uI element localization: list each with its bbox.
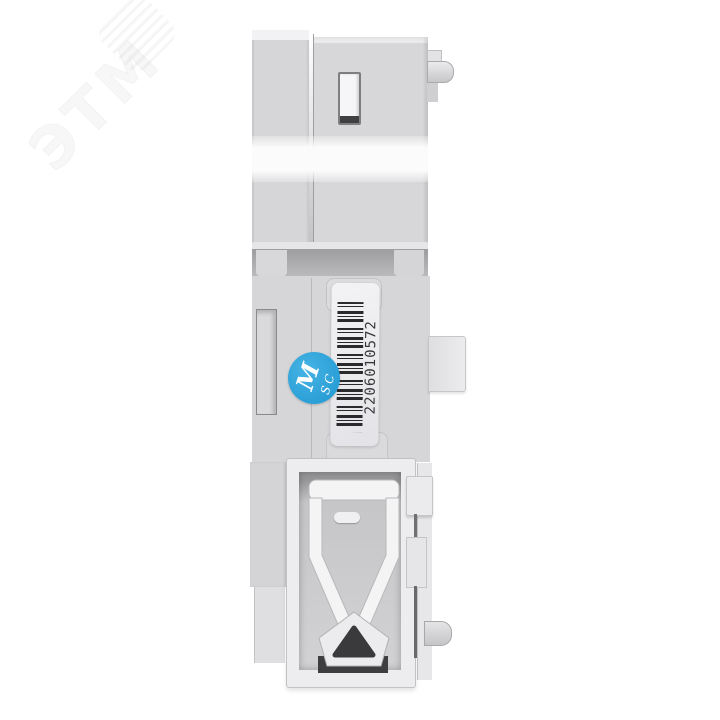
indicator-slot-hole [340,116,359,123]
bottom-mount-pin [424,621,452,646]
step-tab-right [394,250,424,276]
rail-gap-upper [414,514,417,537]
qc-sticker: M SC [288,352,340,404]
indicator-slot-window [338,72,361,125]
barcode-number: 2206010572 [362,300,378,434]
step-tab-left [256,250,287,276]
rail-clip-block-mid [406,537,427,588]
bottom-left-foot [254,587,285,663]
top-pin-base [427,82,438,102]
top-mount-pin [427,61,454,83]
product-photo: ЭТМ 2206010572 M SC [0,0,720,720]
rail-gap-lower [414,586,417,658]
barcode-label: 2206010572 [330,283,379,446]
din-rail-clip [295,478,411,674]
bottom-left-housing [250,462,287,587]
left-recess-slot [256,309,277,415]
right-connector-tab [428,336,466,392]
housing-white-band [252,136,428,182]
rail-clip-block-top [406,476,433,516]
barcode-bars [336,302,363,432]
upper-left-housing-cap [252,30,309,40]
qc-sticker-text: M SC [289,359,338,398]
